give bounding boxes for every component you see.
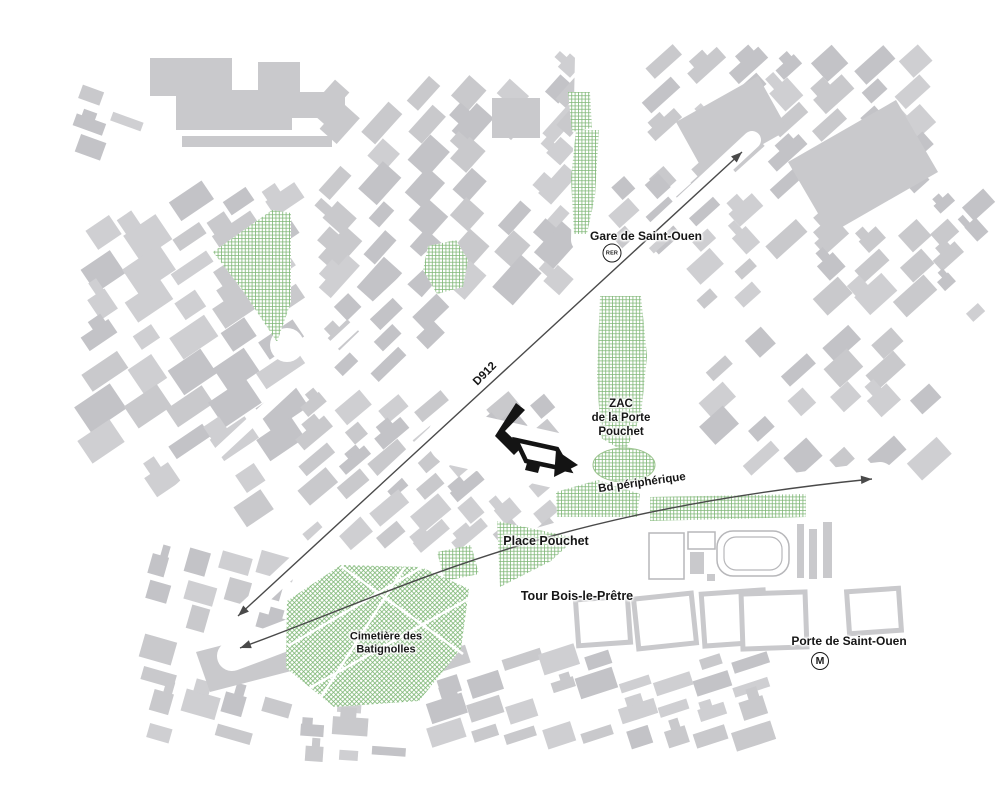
- label-porte-de-saint-ouen: Porte de Saint-Ouen: [791, 634, 906, 648]
- stadium-layer: [649, 522, 832, 581]
- metro-icon-text: M: [816, 655, 825, 667]
- label-tour-bois-le-pretre: Tour Bois-le-Prêtre: [521, 589, 633, 603]
- label-cimetiere-line1: Cimetière des: [350, 631, 422, 643]
- label-zac-porte-pouchet: ZAC de la Porte Pouchet: [592, 397, 651, 439]
- label-cimetiere-line2: Batignolles: [356, 643, 415, 655]
- map-svg: [0, 0, 1000, 790]
- rer-icon: RER: [603, 244, 622, 263]
- buildings-layer: [73, 44, 996, 762]
- label-zac-line2: de la Porte: [592, 412, 651, 424]
- label-place-pouchet: Place Pouchet: [503, 534, 588, 548]
- label-zac-line1: ZAC: [609, 398, 633, 410]
- site-location-map: Gare de Saint-Ouen RER ZAC de la Porte P…: [0, 0, 1000, 790]
- label-gare-de-saint-ouen: Gare de Saint-Ouen: [590, 229, 702, 243]
- metro-icon: M: [811, 652, 829, 670]
- label-zac-line3: Pouchet: [598, 426, 643, 438]
- rer-icon-text: RER: [606, 250, 618, 256]
- label-cimetiere-des-batignolles: Cimetière des Batignolles: [350, 631, 422, 656]
